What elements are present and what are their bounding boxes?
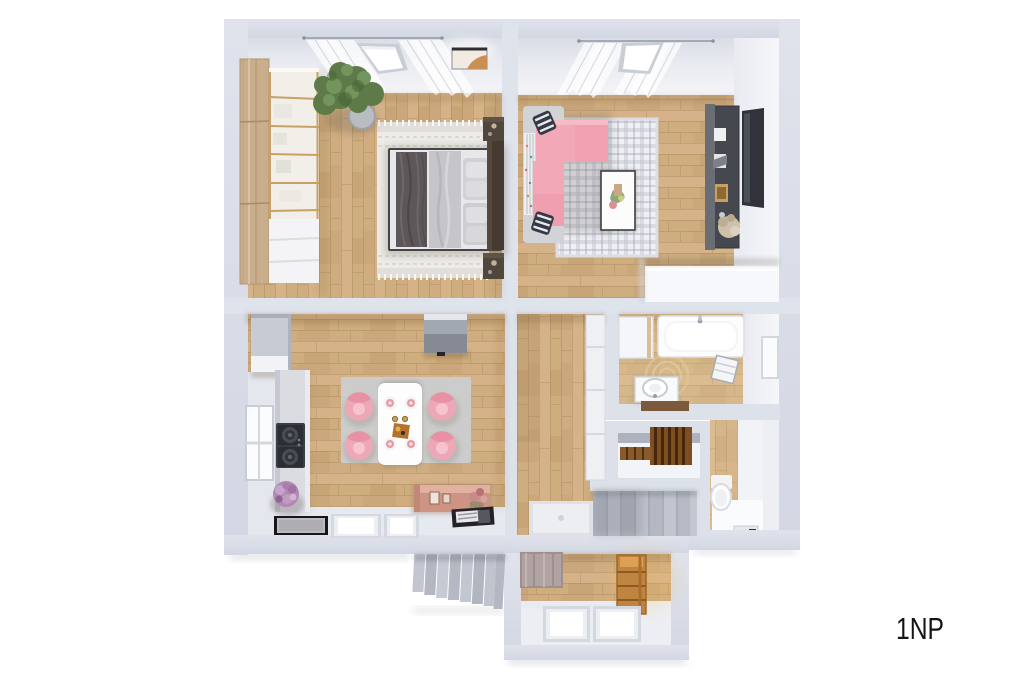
svg-text:1NP: 1NP <box>896 611 944 646</box>
